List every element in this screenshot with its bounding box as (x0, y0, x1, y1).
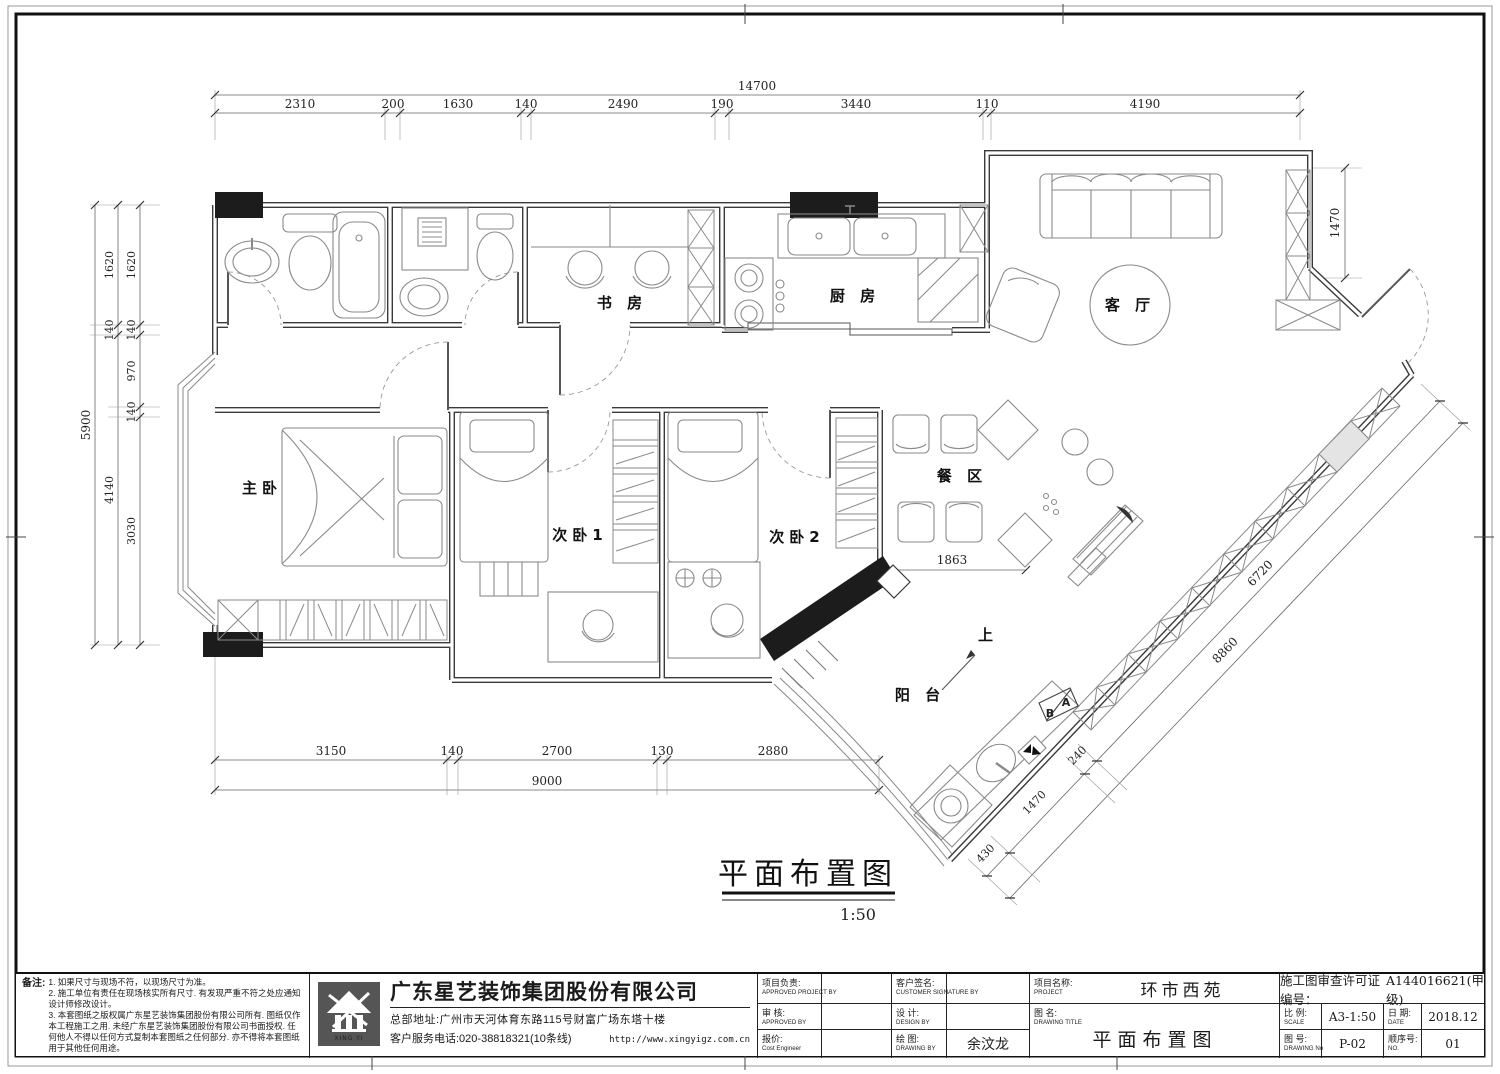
dim-bot-seg4: 2880 (758, 744, 789, 758)
room-labels: 主卧 次卧1 次卧2 书 房 厨 房 客 厅 餐 区 阳 台 上 A B (242, 287, 1155, 720)
label-kitchen: 厨 房 (830, 287, 880, 305)
plan-title: 平面布置图 1:50 (718, 857, 898, 924)
dim-top-seg4: 2490 (608, 97, 639, 111)
label-b: B (1046, 707, 1054, 720)
dim-diag-240: 240 (1066, 744, 1090, 768)
shower (402, 208, 468, 270)
svg-text:XING YI: XING YI (334, 1035, 363, 1042)
sliding-door-panel-1 (748, 323, 850, 329)
bath2-toilet-tank (477, 214, 513, 229)
seq-label: 顺序号: NO. (1384, 1029, 1422, 1058)
dining-chair-4 (946, 502, 982, 542)
study-cabinet (688, 210, 714, 325)
bath2-toilet (477, 232, 513, 280)
console-table (1073, 505, 1143, 575)
dim-top-total: 14700 (738, 79, 776, 93)
bed2-stool (583, 610, 613, 640)
bed3-stool (711, 604, 743, 636)
master-bed (282, 428, 447, 566)
dining-bench (1068, 548, 1106, 586)
diagonal-wall (760, 556, 897, 661)
company-website: http://www.xingyigz.com.cn (609, 1035, 750, 1045)
bed3-wardrobe (836, 418, 878, 548)
company-logo: XING YI (318, 982, 380, 1046)
bed2-wardrobe (613, 420, 658, 563)
dim-diag-6720: 6720 (1244, 557, 1275, 589)
company-phone: 客户服务电话:020-38818321(10条线) (390, 1030, 572, 1046)
dim-top-seg2: 1630 (443, 97, 474, 111)
dim-left-mid2: 4140 (103, 476, 116, 504)
drawing-title-value: 平面布置图 (1030, 1020, 1280, 1056)
dim-bot-total: 9000 (532, 774, 563, 788)
kitchen-sink-2 (854, 218, 916, 255)
sig-drawing-label: 绘 图: DRAWING BY (892, 1029, 947, 1058)
label-up: 上 (978, 626, 998, 644)
study-chair-2 (635, 251, 669, 285)
sig-design-label: 设 计: DESIGN BY (892, 1003, 947, 1029)
bath2-sink (400, 278, 448, 316)
project-row: 项目名称: PROJECT 环市西苑 (1030, 974, 1280, 1003)
dim-left-in0: 1620 (125, 251, 138, 279)
balcony-counter (914, 681, 1079, 840)
bed2-pillow (470, 420, 534, 452)
plan-title-scale: 1:50 (840, 905, 876, 924)
sig-customer-label: 客户签名: CUSTOMER SIGNATURE BY (892, 974, 947, 1003)
dining-decor-2 (1087, 459, 1113, 485)
company-address: 总部地址:广州市天河体育东路115号财富广场东塔十楼 (390, 1011, 750, 1027)
dim-left-in1: 140 (125, 320, 138, 341)
label-living: 客 厅 (1104, 296, 1155, 314)
bed2-drawers (480, 562, 538, 596)
scale-label: 比 例: SCALE (1280, 1003, 1322, 1029)
dim-left-mid0: 1620 (103, 251, 116, 279)
study-chair-1 (568, 251, 602, 285)
title-block: 备注: 1. 如果尺寸与现场不符，以现场尺寸为准。 2. 施工单位有责任在现场核… (16, 972, 1484, 1056)
project-name: 环市西苑 (1090, 974, 1275, 1003)
sig-drawn-by: 余汶龙 (947, 1029, 1030, 1058)
bay-window (178, 352, 215, 626)
dim-diag-1470: 1470 (1020, 788, 1049, 817)
master-pillow-1 (398, 436, 442, 494)
dim-diag-430: 430 (974, 842, 998, 866)
dim-bot-seg1: 140 (441, 744, 464, 758)
dim-dining-width: 1863 (937, 553, 968, 567)
dimension-labels: 14700 2310 200 1630 140 2490 190 3440 11… (79, 79, 1342, 866)
xingyi-logo-icon: XING YI (321, 985, 377, 1043)
dining-chair-1 (893, 415, 929, 453)
dining-chair-3 (898, 502, 934, 542)
floor-plan-svg: 14700 2310 200 1630 140 2490 190 3440 11… (0, 0, 1500, 1074)
drawing-sheet: 14700 2310 200 1630 140 2490 190 3440 11… (0, 0, 1500, 1074)
kitchen-stove-counter (725, 258, 773, 330)
dim-left-mid1: 140 (103, 320, 116, 341)
armchair (984, 265, 1063, 345)
label-balcony: 阳 台 (895, 686, 945, 704)
dim-bot-seg2: 2700 (542, 744, 573, 758)
columns (203, 192, 878, 657)
sig-check-label: 审 核: APPROVED BY (758, 1003, 822, 1029)
note-1: 1. 如果尺寸与现场不符，以现场尺寸为准。 (48, 977, 303, 988)
dim-left-in2: 970 (125, 361, 138, 382)
master-pillow-2 (398, 500, 442, 558)
bathtub (333, 212, 385, 318)
label-a: A (1062, 696, 1071, 709)
sig-design-value (947, 1003, 1030, 1029)
study-desk (531, 205, 688, 247)
dim-left-total: 5900 (79, 410, 93, 441)
label-study: 书 房 (597, 294, 647, 312)
dim-bot-seg0: 3150 (316, 744, 347, 758)
bath1-toilet-tank (283, 214, 337, 232)
company-name: 广东星艺装饰集团股份有限公司 (390, 976, 750, 1008)
dim-top-seg5: 190 (711, 97, 734, 111)
sig-customer-value (947, 974, 1030, 1003)
dim-living-depth: 1470 (1328, 208, 1342, 239)
seq-value: 01 (1422, 1029, 1484, 1058)
walls (178, 153, 1412, 866)
note-3: 3. 本套图纸之版权属广东星艺装饰集团股份有限公司所有. 图纸仅作本工程施工之用… (48, 1010, 303, 1054)
dim-top-seg6: 3440 (841, 97, 872, 111)
drawing-no-value: P-02 (1322, 1029, 1384, 1058)
notes-cell: 备注: 1. 如果尺寸与现场不符，以现场尺寸为准。 2. 施工单位有责任在现场核… (16, 974, 310, 1058)
dim-left-in4: 3030 (125, 517, 138, 545)
bed2-bed (460, 412, 548, 562)
label-bed2: 次卧1 (552, 526, 607, 544)
permit-cell: 施工图审查许可证编号：A144016621(甲级) (1280, 974, 1484, 1003)
master-wardrobe (258, 600, 447, 640)
date-label: 日 期: DATE (1384, 1003, 1422, 1029)
sig-cost-value (822, 1029, 892, 1058)
company-cell: XING YI 广东星艺装饰集团股份有限公司 总部地址:广州市天河体育东路115… (310, 974, 758, 1058)
bed3-bed (668, 412, 758, 562)
dim-top-seg0: 2310 (285, 97, 316, 111)
washing-machine (910, 765, 992, 847)
kitchen-cabinet (960, 205, 988, 252)
label-bed3: 次卧2 (769, 528, 824, 546)
dim-top-seg1: 200 (382, 97, 405, 111)
dining-table-1 (978, 400, 1038, 460)
dining-table-2 (998, 513, 1052, 567)
sliding-door-panel-2 (850, 329, 952, 335)
bath1-toilet (289, 236, 331, 290)
sig-cost-label: 报价: Cost Engineer (758, 1029, 822, 1058)
dim-top-seg3: 140 (515, 97, 538, 111)
label-master: 主卧 (242, 479, 282, 497)
sig-check-value (822, 1003, 892, 1029)
up-arrow-head (966, 650, 975, 659)
kitchen-sink-counter (778, 214, 945, 258)
sig-approved-project-label: 项目负责: APPROVED PROJECT BY (758, 974, 822, 1003)
scale-value: A3-1:50 (1322, 1003, 1384, 1029)
drawing-title-cell: 图 名: DRAWING TITLE 平面布置图 (1030, 1003, 1280, 1058)
dim-top-seg7: 110 (976, 97, 999, 111)
notes-label: 备注: (22, 977, 45, 1054)
note-2: 2. 施工单位有责任在现场核实所有尺寸. 有发现严重不符之处应通知设计师修改设计… (48, 988, 303, 1010)
kitchen-sink-1 (788, 218, 850, 255)
up-arrow-line (942, 655, 975, 690)
plan-title-text: 平面布置图 (718, 857, 898, 892)
bed2-desk (548, 592, 658, 662)
stove-burner-1 (735, 264, 763, 292)
drawing-no-label: 图 号: DRAWING No (1280, 1029, 1322, 1058)
dim-bot-seg3: 130 (651, 744, 674, 758)
sig-approved-project-value (822, 974, 892, 1003)
bed3-pillow (678, 420, 742, 452)
dining-decor-1 (1062, 429, 1088, 455)
dining-chair-2 (941, 415, 977, 453)
dimension-lines (90, 90, 1470, 905)
dim-top-seg8: 4190 (1130, 97, 1161, 111)
dim-left-in3: 140 (125, 402, 138, 423)
date-value: 2018.12 (1422, 1003, 1484, 1029)
label-dining: 餐 区 (937, 467, 987, 485)
